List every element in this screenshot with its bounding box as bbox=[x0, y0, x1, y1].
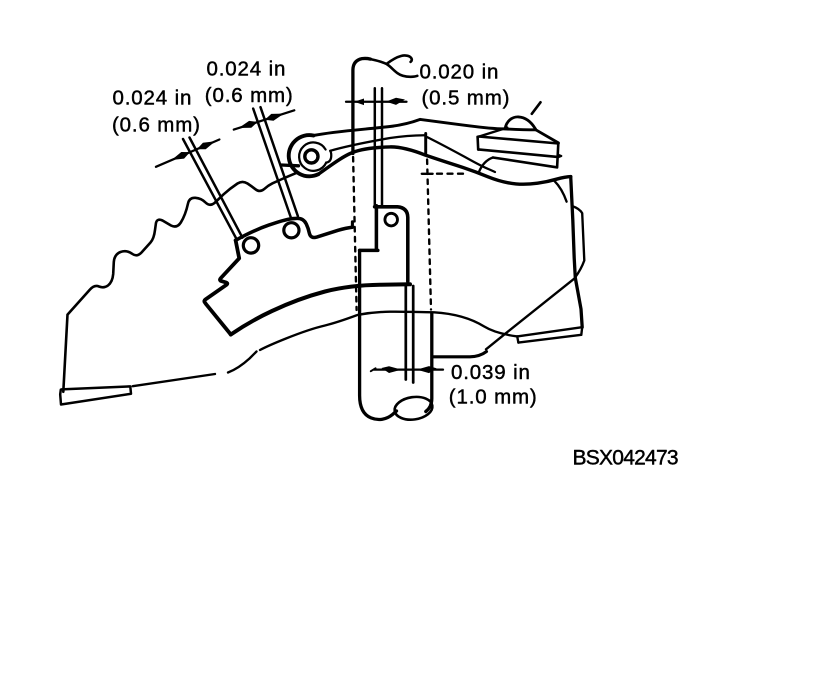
svg-text:(0.6 mm): (0.6 mm) bbox=[112, 113, 201, 136]
svg-text:0.024 in: 0.024 in bbox=[207, 58, 287, 81]
svg-text:(1.0 mm): (1.0 mm) bbox=[449, 386, 538, 409]
svg-text:BSX042473: BSX042473 bbox=[573, 447, 678, 470]
svg-text:0.024 in: 0.024 in bbox=[113, 87, 193, 110]
svg-text:0.039 in: 0.039 in bbox=[451, 361, 531, 384]
svg-text:(0.5 mm): (0.5 mm) bbox=[422, 87, 511, 110]
svg-text:0.020 in: 0.020 in bbox=[420, 60, 500, 83]
svg-text:(0.6 mm): (0.6 mm) bbox=[205, 84, 294, 107]
